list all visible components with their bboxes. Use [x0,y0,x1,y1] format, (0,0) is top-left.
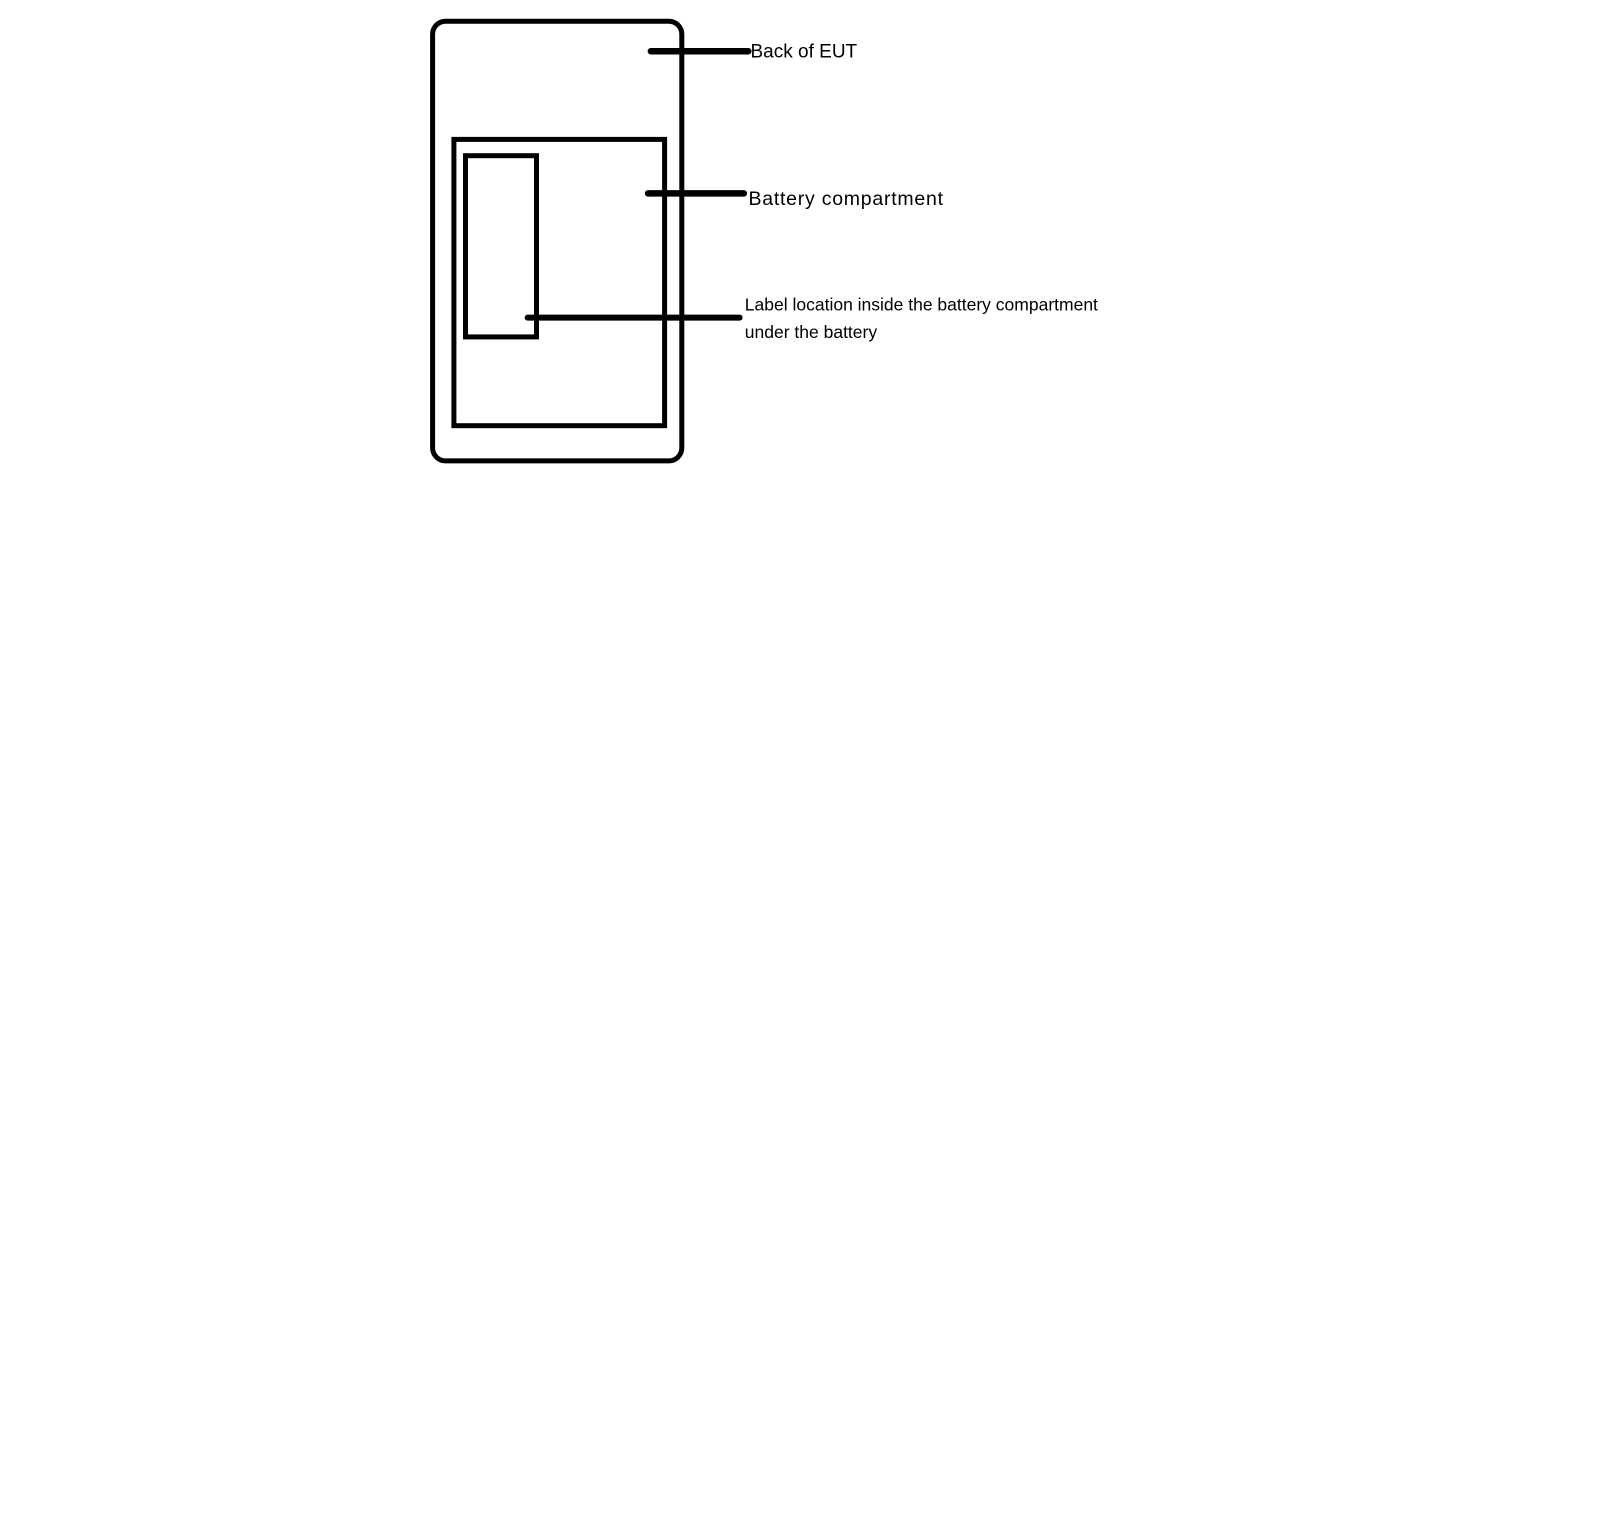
svg-text:Battery compartment: Battery compartment [749,188,944,210]
svg-text:under the battery: under the battery [745,322,878,342]
svg-text:Label location inside the batt: Label location inside the battery compar… [745,295,1098,315]
svg-text:Back of EUT: Back of EUT [751,41,858,62]
